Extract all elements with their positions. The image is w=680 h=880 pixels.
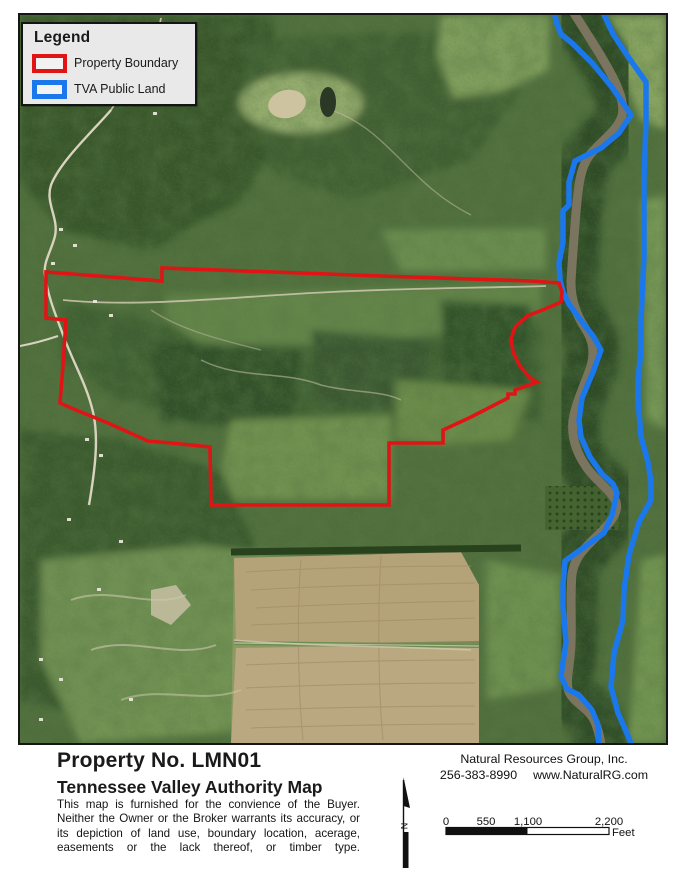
- scale-tick-0: 0: [443, 816, 449, 828]
- legend-item-label: TVA Public Land: [74, 82, 166, 96]
- map-title: Tennessee Valley Authority Map: [57, 777, 323, 798]
- north-arrow-head: [404, 777, 411, 808]
- legend-item-tva-public-land: TVA Public Land: [32, 79, 195, 99]
- aerial-map: [20, 15, 666, 743]
- scale-tick-550: 550: [477, 816, 496, 828]
- legend-item-label: Property Boundary: [74, 56, 178, 70]
- legend-box: Legend Property Boundary TVA Public Land: [21, 22, 197, 106]
- scale-bar: 0 550 1,100 2,200 Feet: [432, 800, 648, 840]
- company-contact-row: 256-383-8990www.NaturalRG.com: [424, 768, 664, 784]
- company-website: www.NaturalRG.com: [533, 768, 648, 782]
- property-number-title: Property No. LMN01: [57, 749, 261, 773]
- north-arrow-base-bar: [404, 832, 409, 868]
- company-name: Natural Resources Group, Inc.: [424, 752, 664, 768]
- north-arrow: N: [394, 774, 416, 874]
- legend-item-property-boundary: Property Boundary: [32, 53, 195, 73]
- aerial-imagery: [20, 15, 666, 743]
- company-phone: 256-383-8990: [440, 768, 517, 782]
- legend-title: Legend: [34, 29, 195, 47]
- scale-tick-1100: 1,100: [514, 816, 542, 828]
- disclaimer-text: This map is furnished for the convience …: [57, 798, 360, 855]
- scale-unit-label: Feet: [612, 827, 635, 839]
- map-frame: [18, 13, 668, 745]
- company-block: Natural Resources Group, Inc. 256-383-89…: [424, 752, 664, 783]
- property-boundary-swatch: [32, 54, 67, 73]
- scale-bar-filled-segment: [446, 828, 528, 835]
- map-page: Legend Property Boundary TVA Public Land…: [0, 0, 680, 880]
- tva-public-land-swatch: [32, 80, 67, 99]
- north-arrow-label: N: [399, 823, 409, 830]
